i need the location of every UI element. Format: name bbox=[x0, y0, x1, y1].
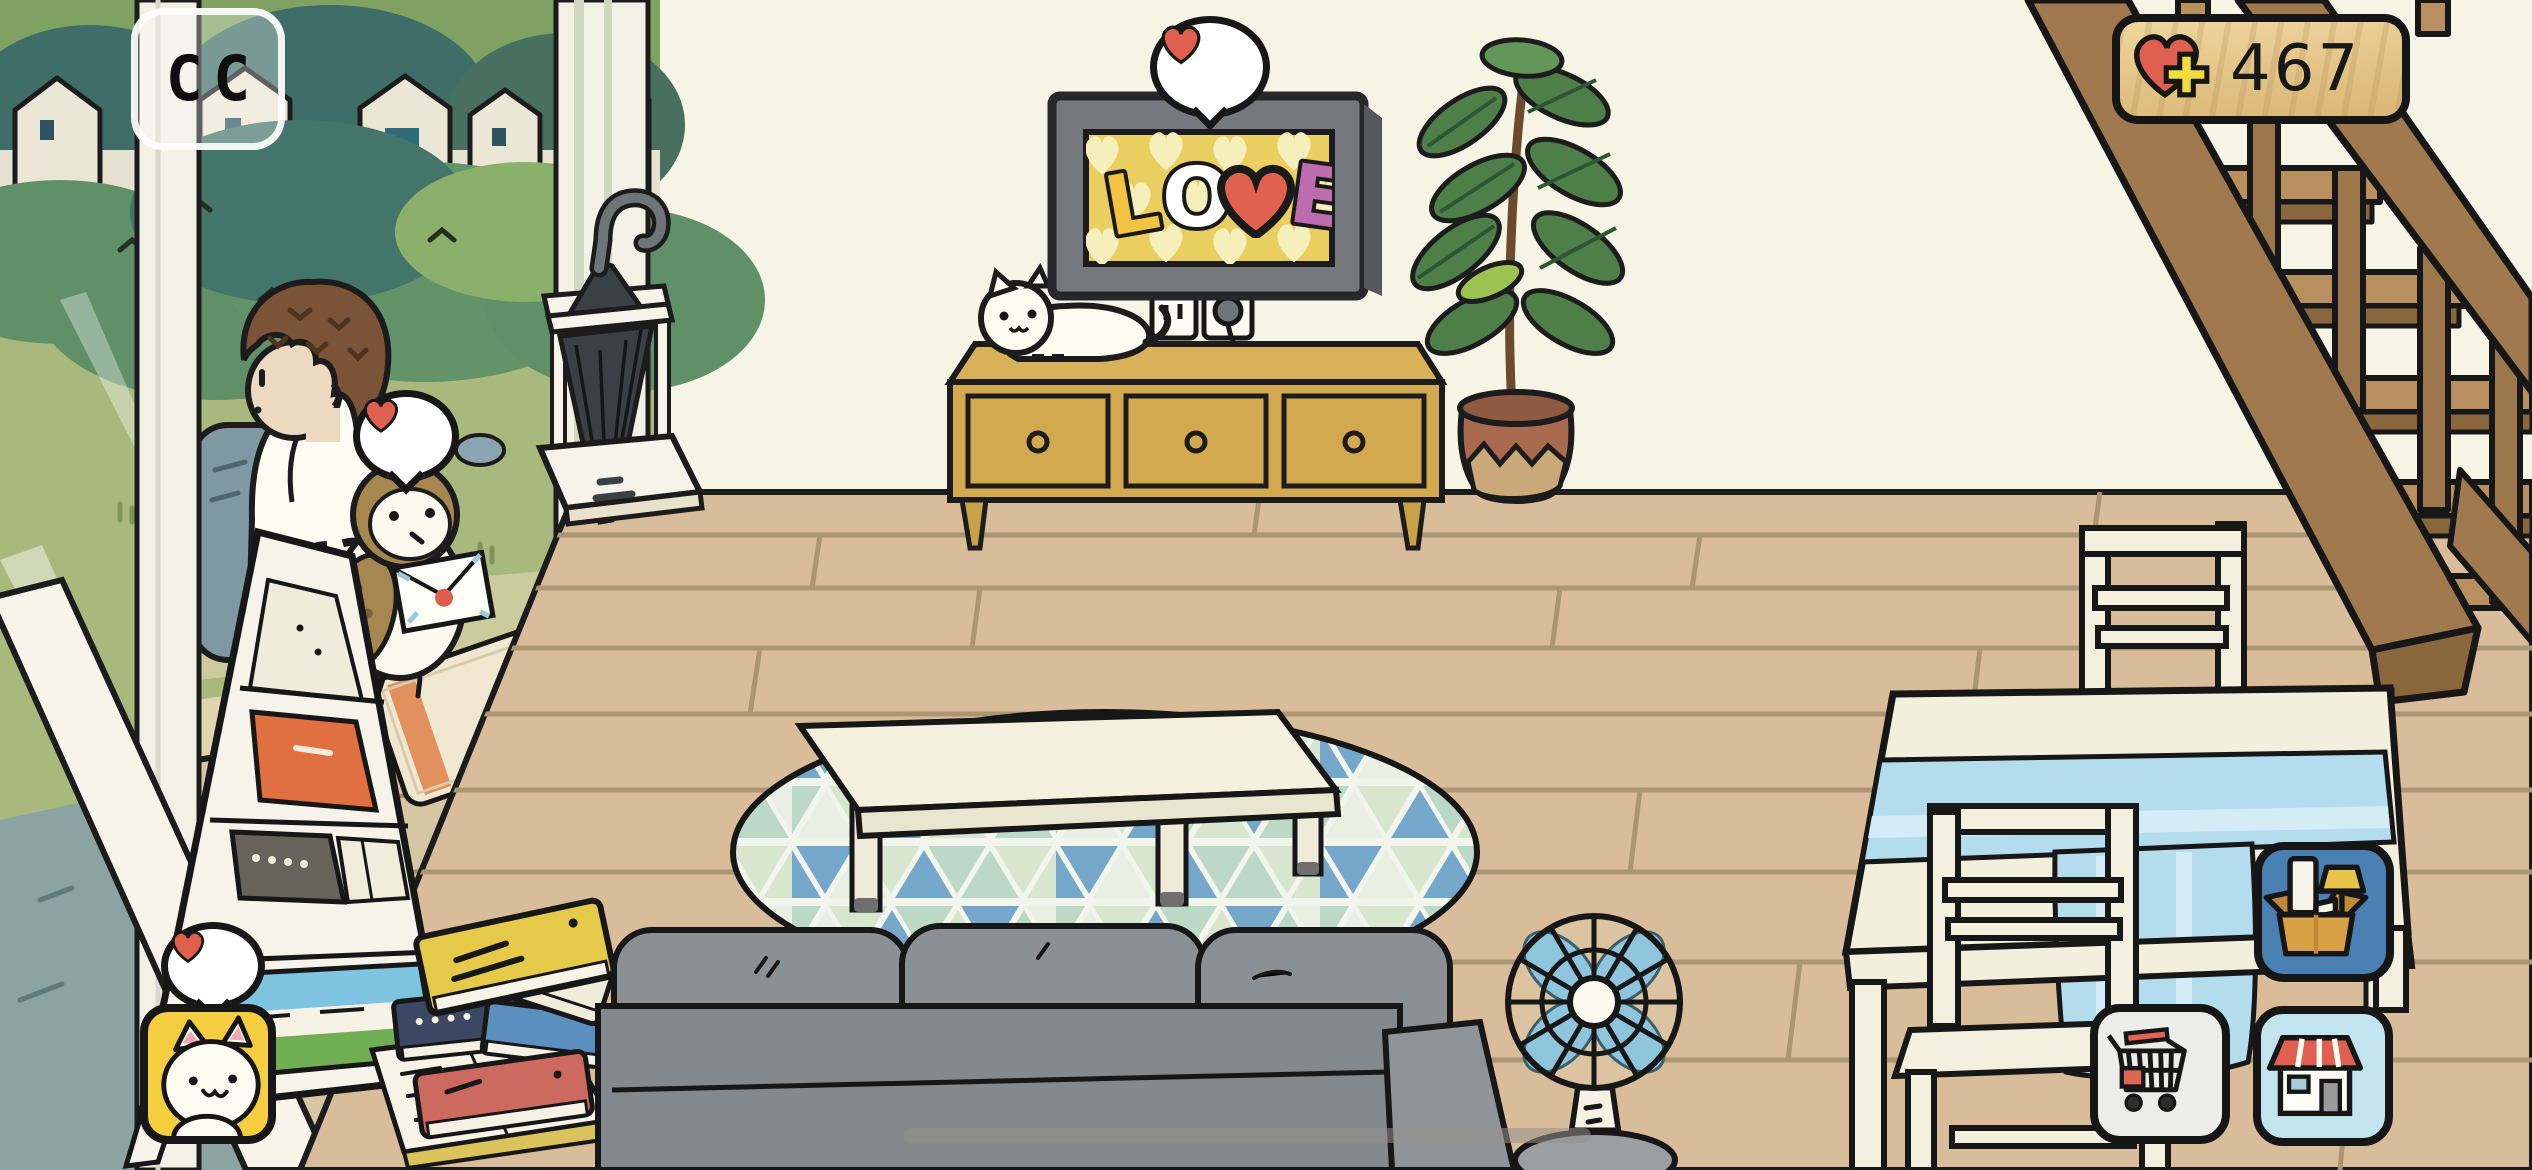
white-books bbox=[338, 838, 408, 902]
owl-face bbox=[370, 489, 450, 559]
white-cat-face-icon bbox=[148, 1012, 270, 1138]
furniture-box-icon bbox=[2262, 850, 2370, 958]
small-rock bbox=[456, 435, 504, 465]
tv[interactable]: L O E bbox=[1052, 96, 1382, 296]
orange-magazine bbox=[252, 712, 376, 810]
cat-photo-sticker[interactable] bbox=[140, 1004, 276, 1144]
cart-button[interactable] bbox=[2090, 1004, 2230, 1144]
reaction-bubble-owl bbox=[353, 390, 459, 482]
plant-pot bbox=[1460, 392, 1572, 501]
heart-icon bbox=[360, 397, 402, 435]
room-scene: L O E bbox=[0, 0, 2532, 1170]
hearts-counter[interactable]: 467 bbox=[2112, 14, 2410, 124]
reaction-bubble-cat-photo bbox=[161, 922, 265, 1010]
shopping-cart-icon bbox=[2098, 1012, 2206, 1120]
decorate-button[interactable] bbox=[2254, 842, 2394, 982]
reaction-bubble-tv bbox=[1150, 16, 1270, 118]
binoculars-icon: CC bbox=[156, 48, 261, 110]
heart-plus-icon bbox=[2130, 25, 2222, 113]
heart-icon bbox=[168, 929, 208, 965]
home-indicator[interactable] bbox=[903, 1128, 1591, 1143]
gray-magazine bbox=[232, 832, 344, 902]
hearts-count: 467 bbox=[2230, 32, 2361, 106]
shop-button[interactable] bbox=[2253, 1006, 2393, 1146]
heart-icon bbox=[1157, 23, 1205, 67]
shop-house-icon bbox=[2261, 1014, 2369, 1122]
man-mouth bbox=[255, 407, 262, 414]
letter-envelope bbox=[393, 552, 493, 631]
adorable-home-room: L O E bbox=[0, 0, 2532, 1170]
fan-hub bbox=[1570, 978, 1618, 1026]
observe-button[interactable]: CC bbox=[131, 8, 285, 150]
